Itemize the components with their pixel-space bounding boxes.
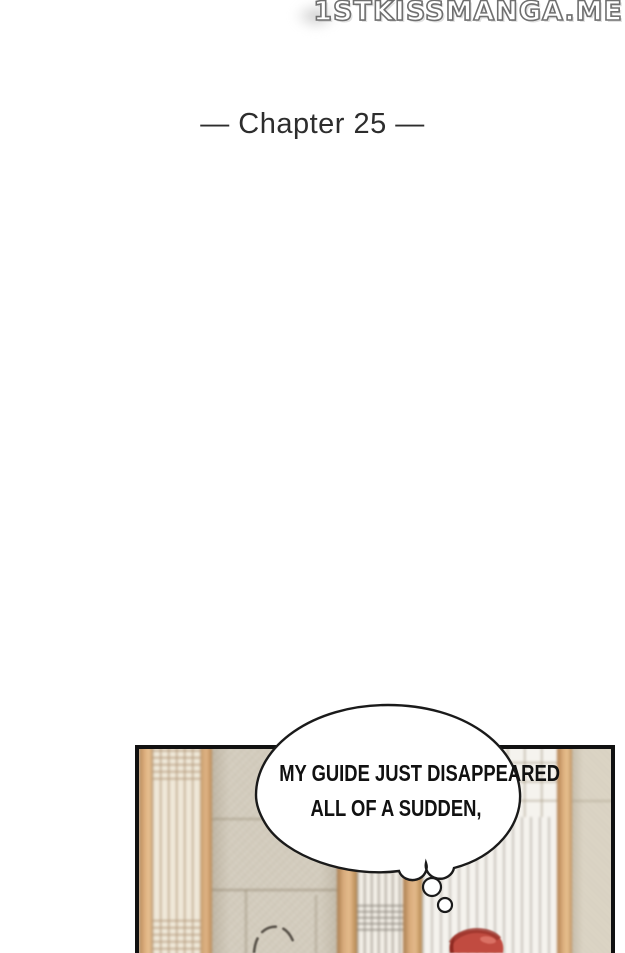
- site-watermark: 1STKISSMANGA.ME: [313, 0, 623, 27]
- chapter-title: — Chapter 25 —: [0, 108, 625, 141]
- thought-bubble-text-line1: MY GUIDE JUST DISAPPEARED: [279, 758, 513, 788]
- head-sketch-outline: [254, 927, 295, 953]
- thought-bubble-text-line2: ALL OF A SUDDEN,: [279, 793, 513, 823]
- thought-trail-circle-small: [438, 898, 452, 912]
- thought-bubble: MY GUIDE JUST DISAPPEARED ALL OF A SUDDE…: [250, 701, 542, 917]
- manga-reader-page: 1STKISSMANGA.ME — Chapter 25 —: [0, 0, 625, 953]
- thought-trail-circle-large: [423, 878, 441, 896]
